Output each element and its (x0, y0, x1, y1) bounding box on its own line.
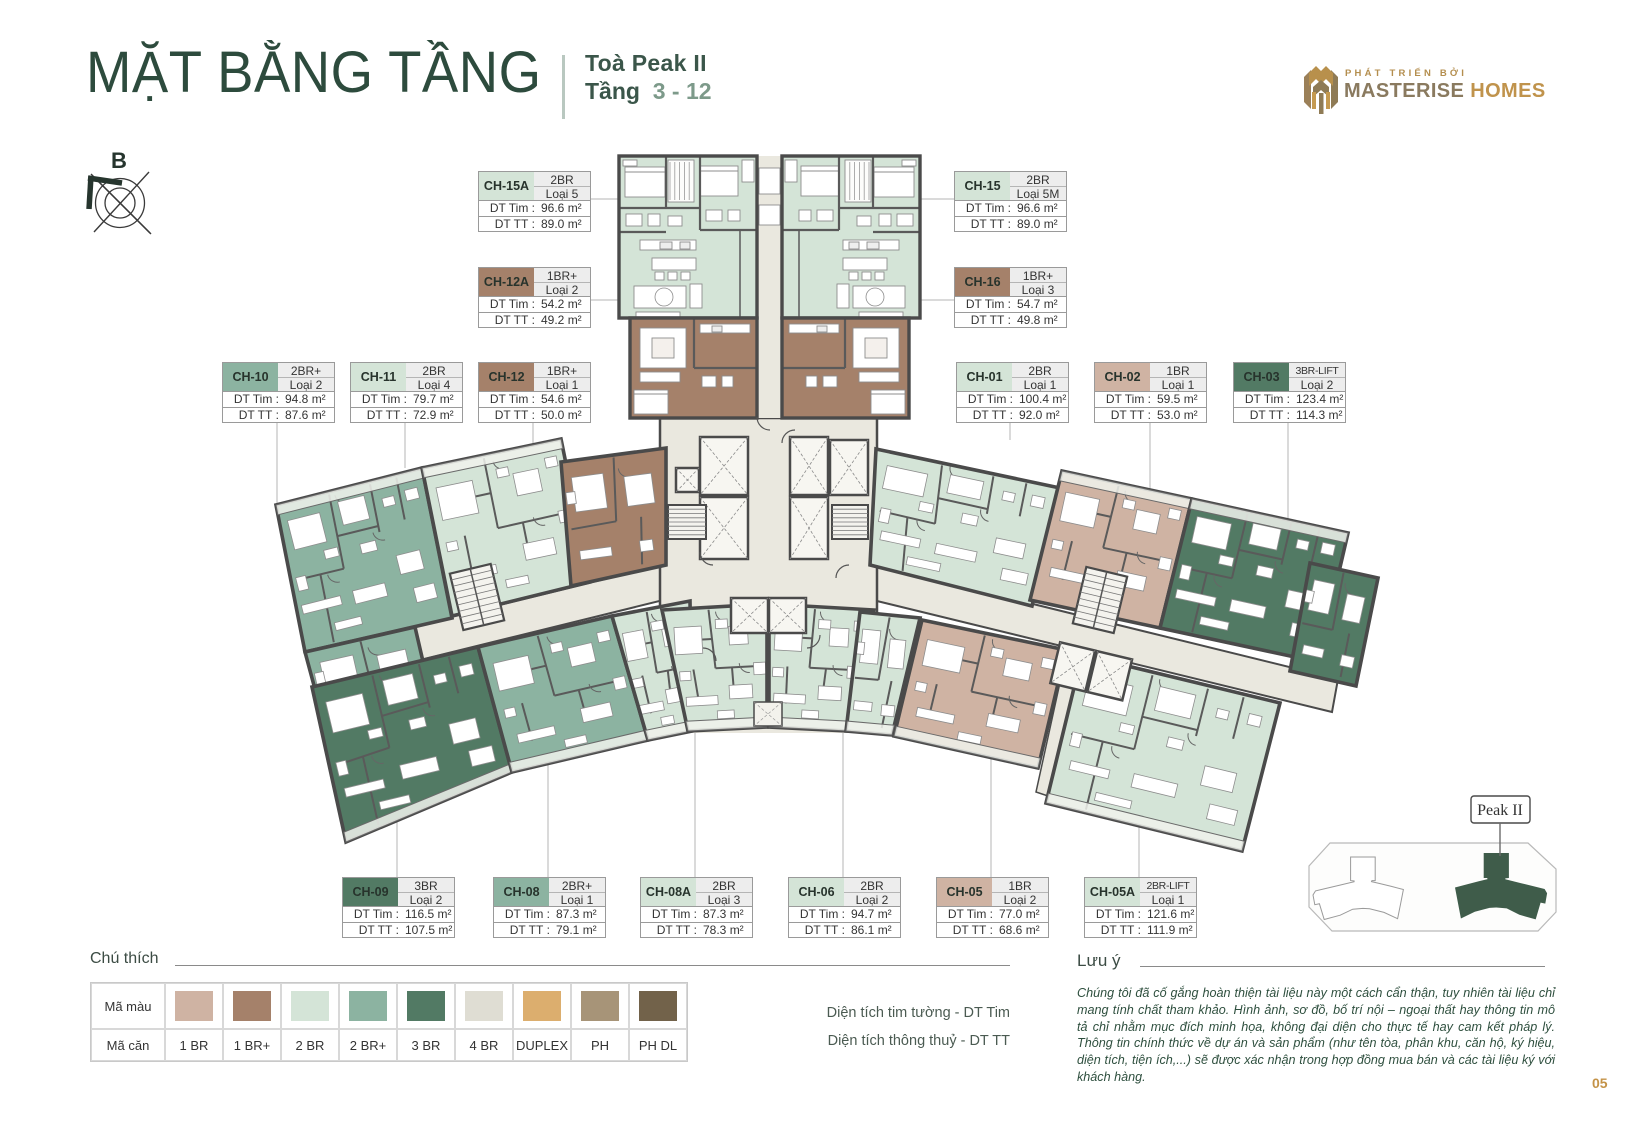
svg-text:PHÁT TRIỂN BỞI: PHÁT TRIỂN BỞI (1345, 67, 1467, 79)
svg-text:MASTERISE HOMES: MASTERISE HOMES (1344, 80, 1546, 102)
svg-text:Peak II: Peak II (1477, 802, 1523, 819)
svg-text:B: B (111, 148, 127, 173)
